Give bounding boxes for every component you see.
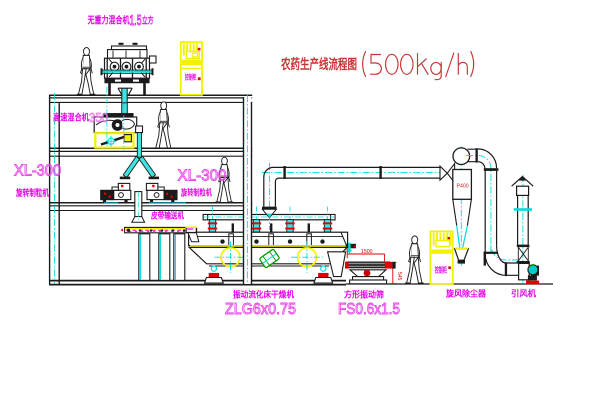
svg-text:控制柜: 控制柜	[185, 73, 197, 82]
svg-text:旋转制粒机: 旋转制粒机	[15, 187, 49, 198]
svg-text:振动流化床干燥机: 振动流化床干燥机	[233, 290, 294, 300]
svg-text:方形振动筛: 方形振动筛	[344, 290, 384, 300]
svg-text:立方: 立方	[142, 15, 154, 26]
svg-text:P400: P400	[457, 184, 469, 190]
svg-text:FS0.6x1.5: FS0.6x1.5	[338, 301, 400, 318]
svg-text:皮带输送机: 皮带输送机	[150, 211, 184, 221]
svg-text:引风机: 引风机	[511, 289, 536, 299]
svg-text:XL-300: XL-300	[178, 168, 227, 185]
svg-text:XL-300: XL-300	[14, 163, 61, 180]
svg-text:ZLG6x0.75: ZLG6x0.75	[225, 301, 296, 318]
svg-text:1500: 1500	[361, 249, 373, 255]
svg-text:旋转制粒机: 旋转制粒机	[180, 188, 212, 198]
svg-text:1.5: 1.5	[130, 13, 142, 29]
svg-text:控制柜: 控制柜	[435, 266, 448, 275]
svg-text:高速混合机: 高速混合机	[53, 112, 89, 123]
svg-text:旋风除尘器: 旋风除尘器	[445, 289, 486, 299]
svg-text:350: 350	[89, 110, 108, 125]
svg-text:农药生产线流程图: 农药生产线流程图	[280, 56, 357, 72]
svg-text:545: 545	[396, 272, 402, 281]
svg-text:无重力混合机: 无重力混合机	[87, 15, 130, 27]
